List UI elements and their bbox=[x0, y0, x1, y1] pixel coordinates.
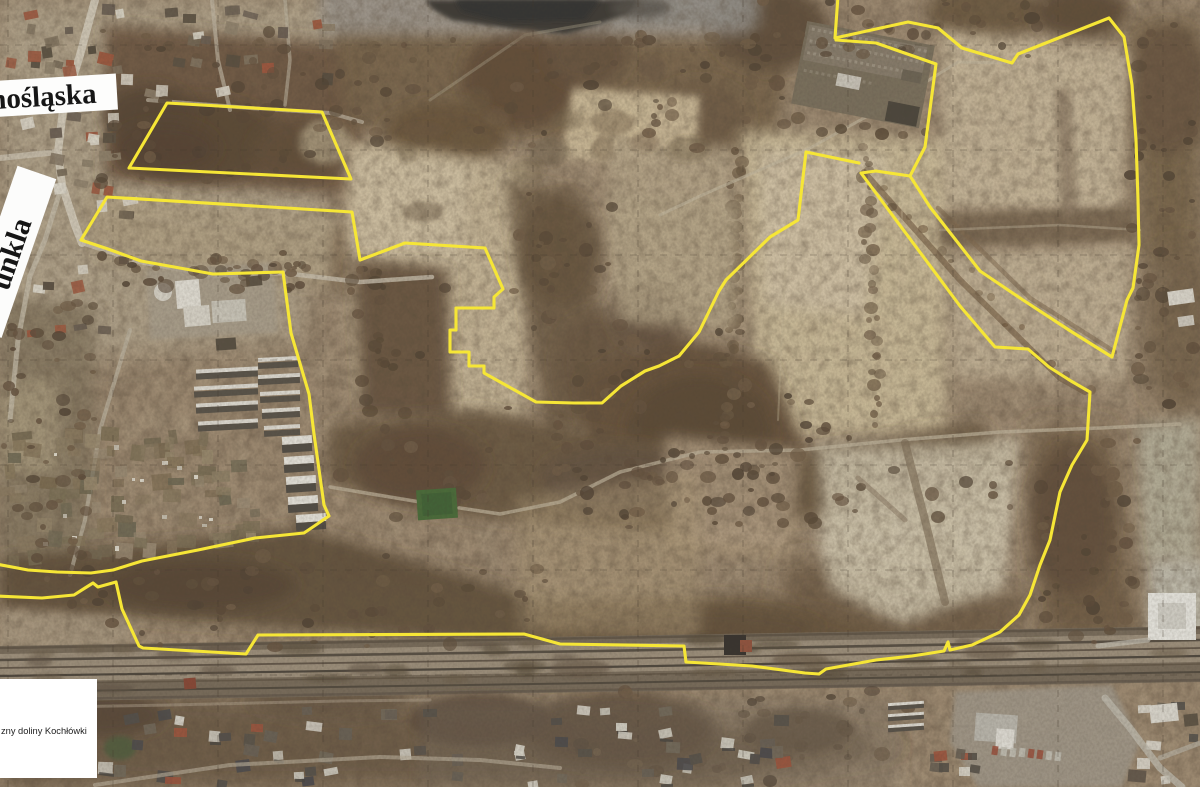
svg-text:zny doliny Kochłówki: zny doliny Kochłówki bbox=[1, 726, 87, 736]
svg-text:nośląska: nośląska bbox=[0, 78, 98, 116]
